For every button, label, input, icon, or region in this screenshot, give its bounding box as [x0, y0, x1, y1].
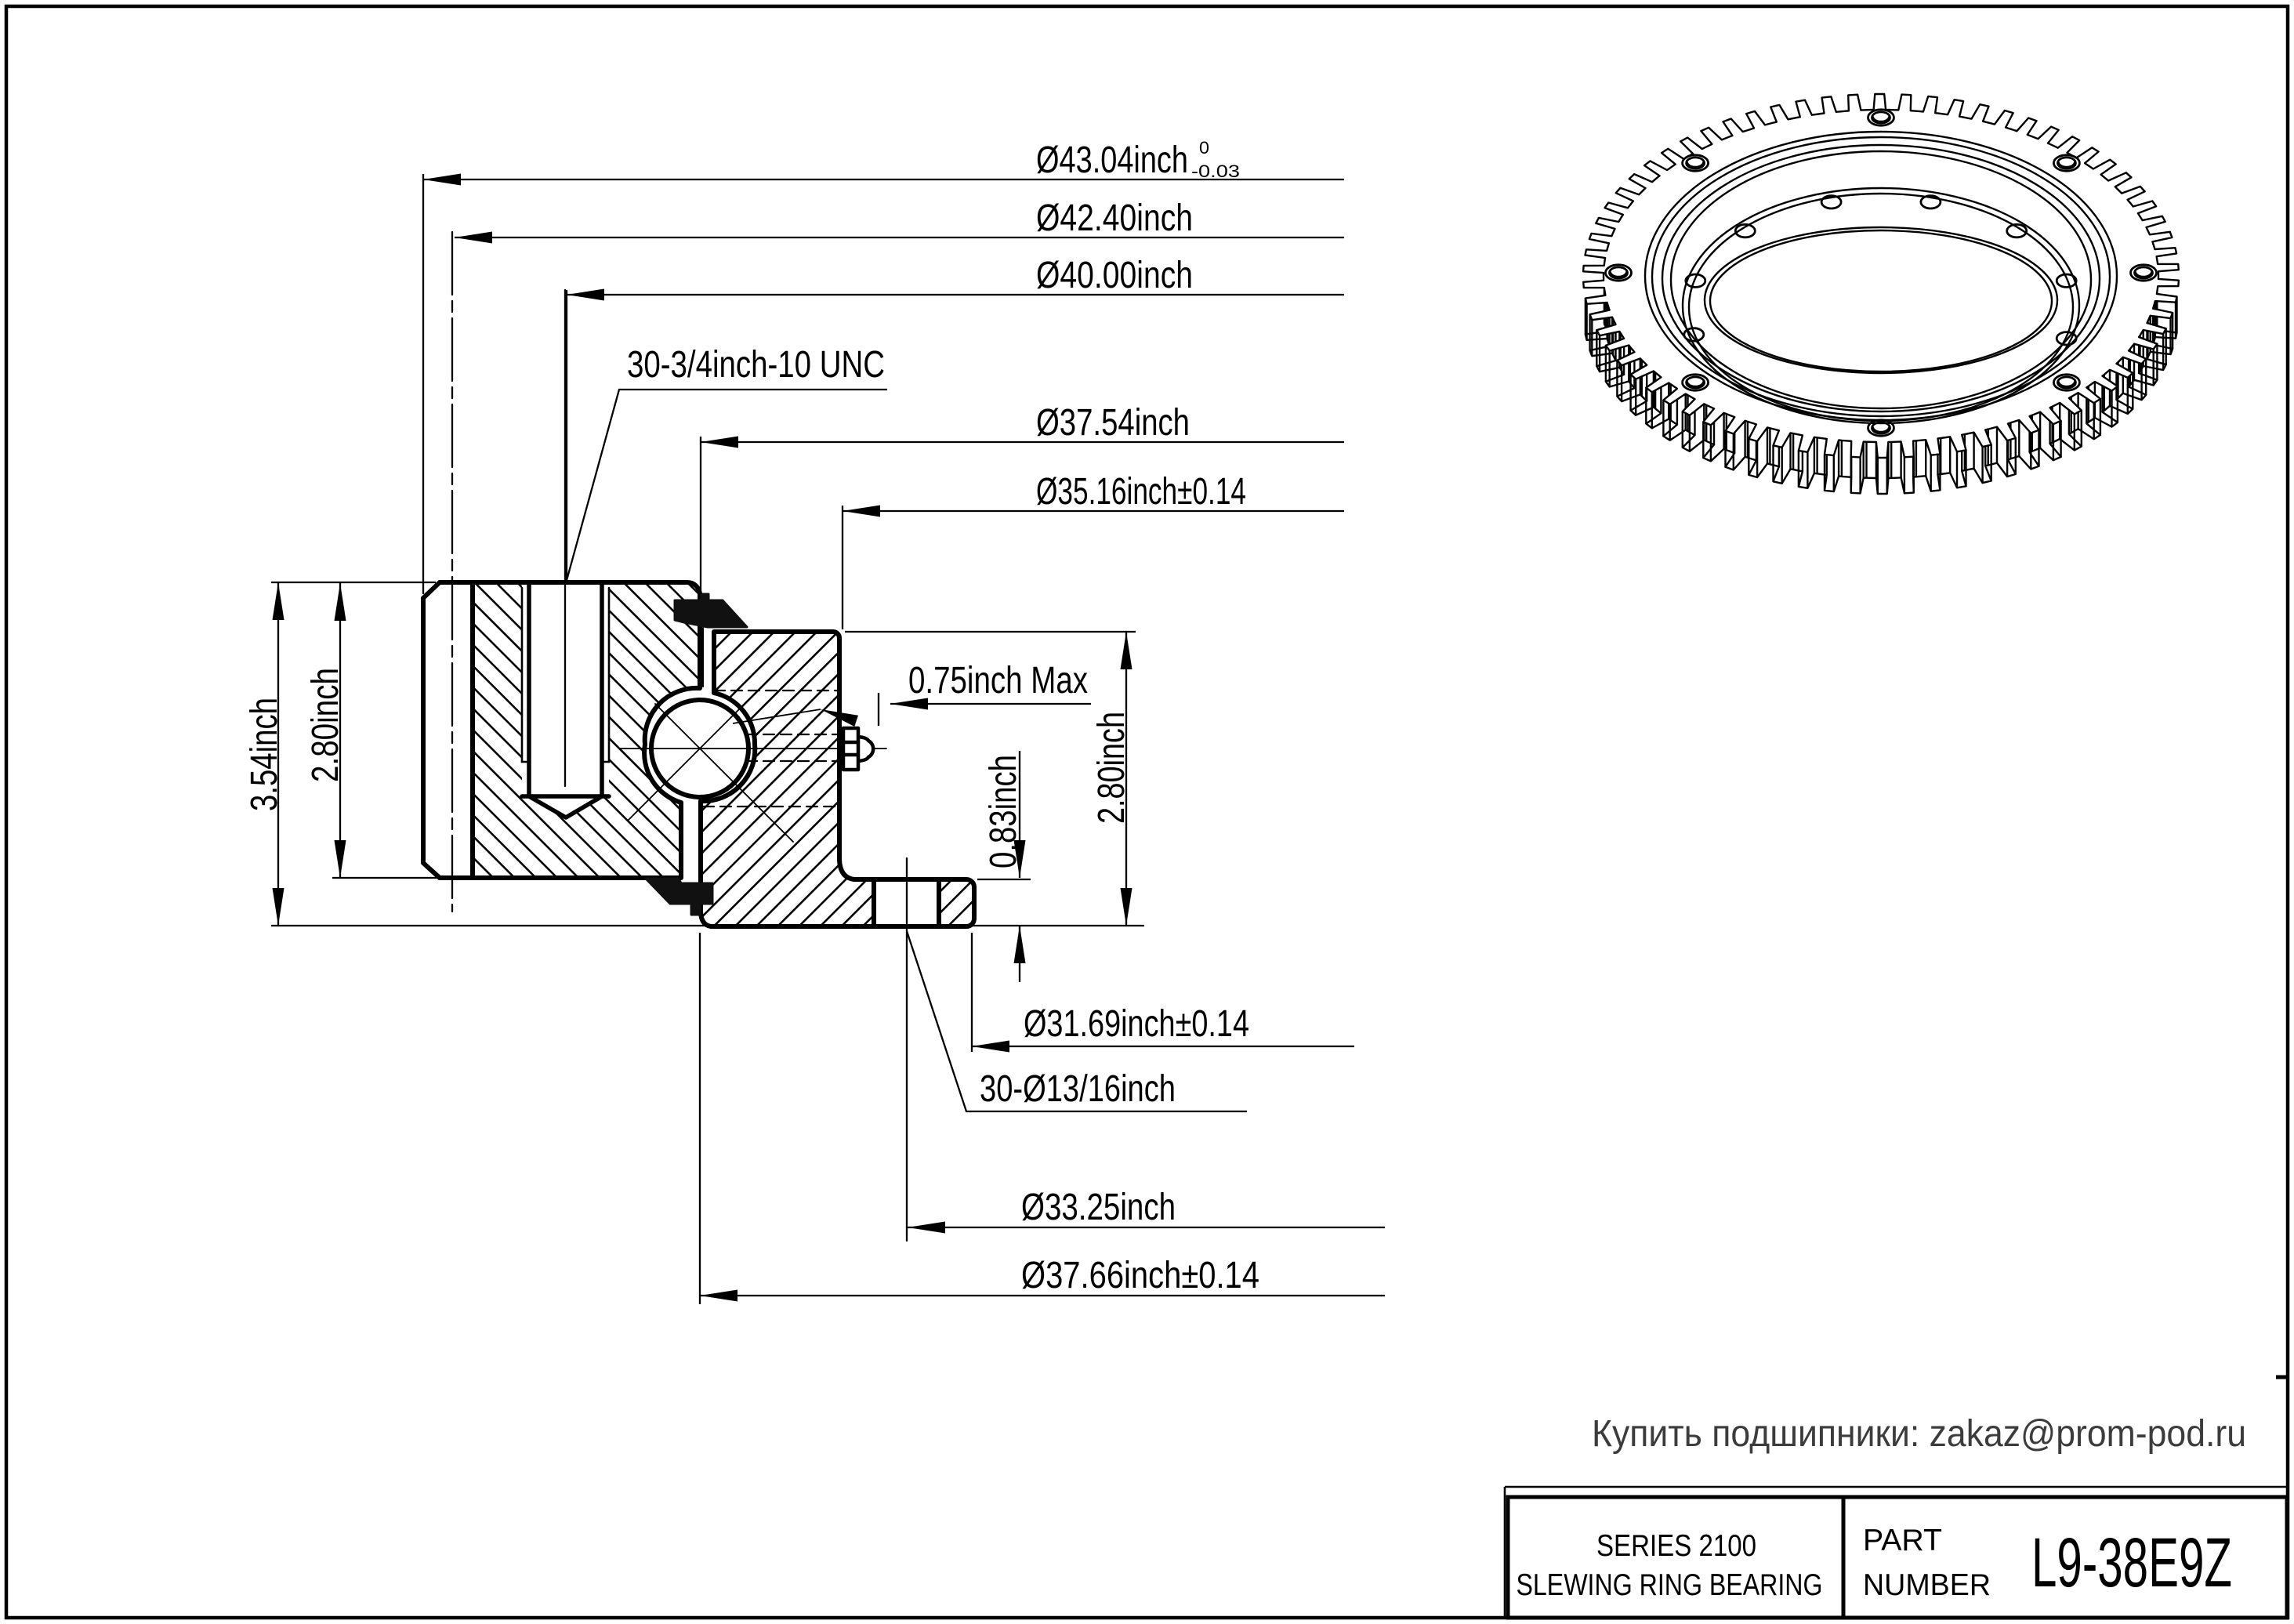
svg-text:Ø42.40inch: Ø42.40inch: [1036, 198, 1193, 239]
svg-text:Купить подшипники: zakaz@prom-: Купить подшипники: zakaz@prom-pod.ru: [1592, 1413, 2246, 1455]
svg-text:Ø31.69inch±0.14: Ø31.69inch±0.14: [1024, 1003, 1249, 1045]
svg-text:3.54inch: 3.54inch: [244, 698, 285, 811]
svg-text:L9-38E9Z: L9-38E9Z: [2031, 1523, 2232, 1601]
svg-text:Ø35.16inch±0.14: Ø35.16inch±0.14: [1036, 471, 1246, 513]
svg-text:0: 0: [1199, 138, 1209, 158]
svg-text:SERIES 2100: SERIES 2100: [1596, 1529, 1756, 1563]
svg-text:2.80inch: 2.80inch: [305, 668, 346, 782]
svg-text:Ø37.66inch±0.14: Ø37.66inch±0.14: [1021, 1255, 1259, 1296]
svg-text:NUMBER: NUMBER: [1863, 1568, 1991, 1602]
svg-text:2.80inch: 2.80inch: [1091, 712, 1133, 824]
svg-text:30-3/4inch-10 UNC: 30-3/4inch-10 UNC: [627, 344, 885, 386]
svg-text:0.75inch Max: 0.75inch Max: [908, 660, 1088, 701]
svg-text:SLEWING RING BEARING: SLEWING RING BEARING: [1517, 1568, 1823, 1602]
svg-text:0.83inch: 0.83inch: [983, 755, 1024, 868]
svg-text:Ø33.25inch: Ø33.25inch: [1021, 1187, 1176, 1228]
svg-text:PART: PART: [1863, 1524, 1942, 1557]
svg-text:Ø40.00inch: Ø40.00inch: [1036, 255, 1193, 296]
svg-text:Ø43.04inch: Ø43.04inch: [1036, 140, 1188, 181]
svg-text:Ø37.54inch: Ø37.54inch: [1036, 402, 1190, 444]
svg-text:-0.03: -0.03: [1191, 161, 1240, 181]
svg-text:30-Ø13/16inch: 30-Ø13/16inch: [980, 1068, 1176, 1110]
